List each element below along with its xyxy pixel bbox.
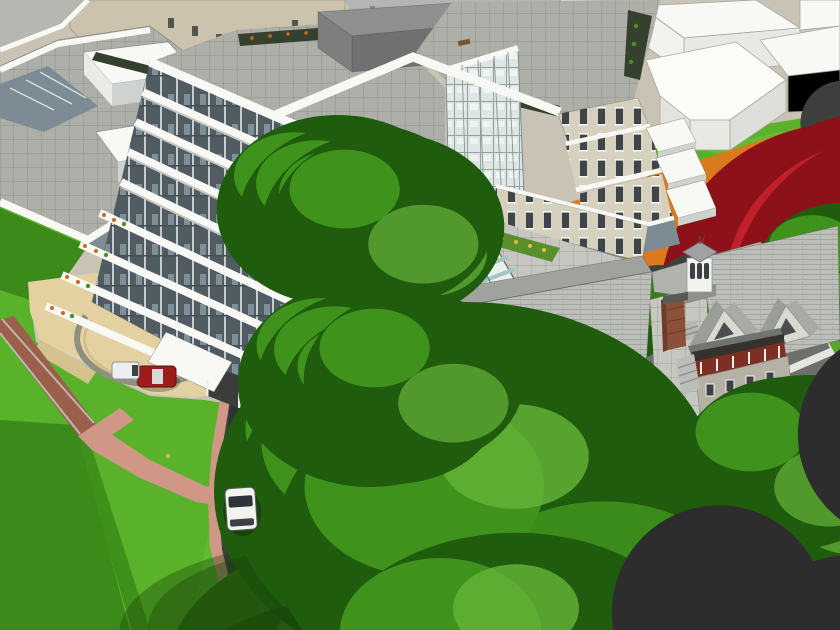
white-van[interactable] bbox=[112, 362, 139, 379]
red-suv[interactable] bbox=[136, 366, 180, 392]
chimney bbox=[661, 292, 688, 352]
architectural-rendering bbox=[0, 0, 840, 630]
rendering-canvas bbox=[0, 0, 840, 630]
